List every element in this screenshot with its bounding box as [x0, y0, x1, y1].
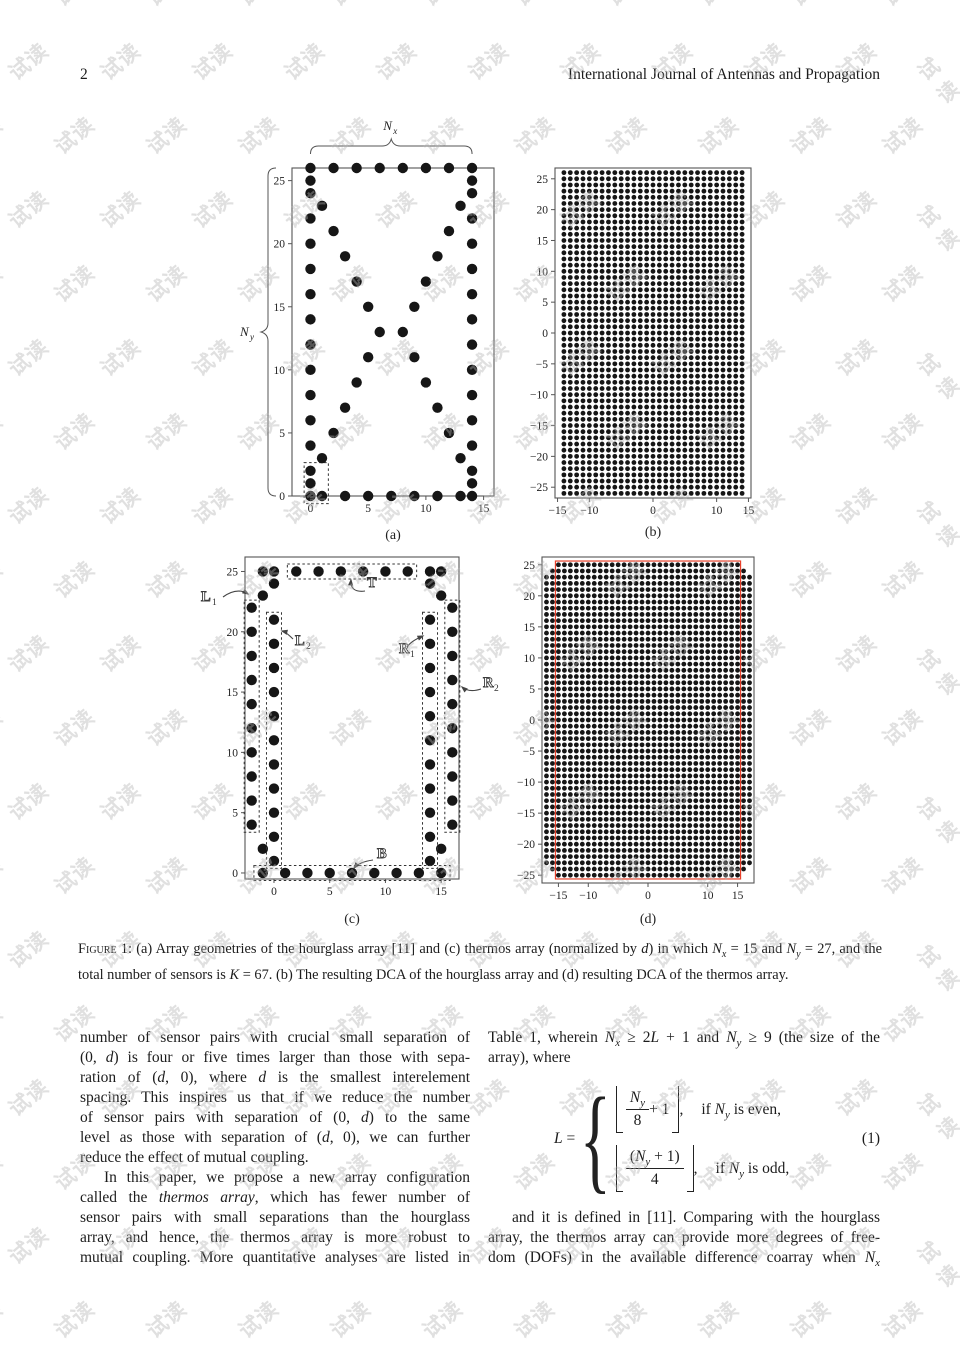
region-label-T: T [367, 575, 377, 591]
equation-1: L = { Ny8 + 1,if Ny is even,(Ny + 1)4,if… [488, 1078, 880, 1200]
trial-watermark: 试读 [0, 0, 8, 13]
trial-watermark: 试读 [876, 701, 929, 752]
text-line: sensor pairs with small separations than… [80, 1208, 470, 1228]
math-variable: N [787, 941, 797, 957]
trial-watermark: 试读 [955, 416, 960, 476]
trial-watermark: 试读 [955, 120, 960, 180]
axis-dimension-label: Ny [239, 324, 254, 342]
svg-text:5: 5 [542, 297, 548, 309]
trial-watermark: 试读 [48, 0, 101, 13]
trial-watermark: 试读 [416, 0, 469, 13]
svg-text:10: 10 [537, 266, 549, 278]
fraction: (Ny + 1)4 [626, 1147, 684, 1190]
trial-watermark: 试读 [48, 701, 101, 752]
trial-watermark: 试读 [876, 849, 929, 900]
math-variable: K [229, 967, 239, 983]
svg-text:20: 20 [227, 627, 239, 639]
math-variable: d [641, 941, 648, 957]
trial-watermark: 试读 [876, 257, 929, 308]
text-line: In this paper, we propose a new array co… [80, 1168, 470, 1188]
trial-watermark: 试读 [830, 331, 883, 382]
comma: , [679, 1100, 683, 1120]
trial-watermark: 试读 [48, 1293, 101, 1344]
svg-text:10: 10 [380, 886, 392, 898]
svg-text:25: 25 [227, 566, 239, 578]
equation-case-row: (Ny + 1)4,if Ny is odd, [616, 1145, 789, 1192]
trial-watermark: 试读 [140, 0, 193, 13]
nx-brace [310, 139, 472, 154]
region-label-subscript: 2 [306, 642, 311, 652]
trial-watermark: 试读 [955, 0, 960, 32]
math-variable: d [258, 1069, 266, 1086]
trial-watermark: 试读 [140, 1293, 193, 1344]
trial-watermark: 试读 [911, 1226, 960, 1294]
region-label-L2: L [295, 633, 305, 649]
trial-watermark: 试读 [876, 997, 929, 1048]
trial-watermark: 试读 [2, 331, 55, 382]
svg-text:5: 5 [365, 503, 371, 515]
svg-text:−15: −15 [549, 890, 567, 902]
trial-watermark: 试读 [508, 1293, 561, 1344]
trial-watermark: 试读 [955, 1008, 960, 1068]
svg-text:−5: −5 [536, 359, 548, 371]
right-text-column: Table 1, wherein Nx ≥ 2L + 1 and Ny ≥ 9 … [488, 1028, 880, 1268]
svg-text:−25: −25 [517, 870, 535, 882]
math-variable: d [361, 1109, 369, 1126]
svg-text:−15: −15 [517, 808, 535, 820]
math-subscript: y [640, 1097, 645, 1109]
trial-watermark: 试读 [830, 775, 883, 826]
trial-watermark: 试读 [911, 338, 960, 406]
trial-watermark: 试读 [911, 1078, 960, 1146]
svg-text:5: 5 [327, 886, 333, 898]
page-number: 2 [80, 66, 88, 84]
trial-watermark: 试读 [140, 405, 193, 456]
trial-watermark: 试读 [0, 257, 8, 308]
journal-title: International Journal of Antennas and Pr… [568, 66, 880, 84]
caption-line: Figure 1: (a) Array geometries of the ho… [78, 936, 882, 962]
trial-watermark: 试读 [955, 1156, 960, 1216]
math-subscript: y [725, 1109, 730, 1121]
trial-watermark: 试读 [2, 923, 55, 974]
text-line: number of sensor pairs with crucial smal… [80, 1028, 470, 1048]
region-label-L1: L [201, 589, 211, 605]
trial-watermark: 试读 [94, 479, 147, 530]
caption-line: total number of sensors is K = 67. (b) T… [78, 962, 882, 988]
x-axis-ticks: −15−1001015 [549, 883, 743, 902]
svg-text:15: 15 [274, 302, 286, 314]
panel-label: (c) [344, 912, 360, 927]
small-caps-text: Figure [78, 941, 117, 957]
text-line: array, the thermos array can provide mor… [488, 1228, 880, 1248]
svg-text:−5: −5 [523, 746, 535, 758]
trial-watermark: 试读 [600, 0, 653, 13]
equation-case-row: Ny8 + 1,if Ny is even, [616, 1086, 789, 1133]
svg-text:x: x [392, 126, 397, 136]
trial-watermark: 试读 [416, 1293, 469, 1344]
figure-1d-thermos-dca: −15−1001015−25−20−15−10−50510152025(d) [496, 545, 784, 947]
svg-text:−20: −20 [517, 839, 535, 851]
svg-text:N: N [382, 118, 393, 133]
fraction-denominator: 4 [626, 1169, 684, 1190]
arrow-head [461, 686, 468, 693]
region-label-subscript: 1 [212, 598, 217, 608]
svg-text:0: 0 [529, 715, 535, 727]
svg-text:10: 10 [702, 890, 714, 902]
svg-text:−25: −25 [530, 482, 548, 494]
trial-watermark: 试读 [2, 479, 55, 530]
math-subscript: y [739, 1168, 744, 1180]
svg-text:5: 5 [529, 684, 535, 696]
svg-text:0: 0 [271, 886, 277, 898]
equation-number: (1) [862, 1129, 880, 1149]
text-line: and it is defined in [11]. Comparing wit… [488, 1208, 880, 1228]
trial-watermark: 试读 [94, 331, 147, 382]
math-subscript: x [875, 1257, 880, 1269]
arrow-head [242, 589, 249, 595]
y-axis-ticks: 0510152025 [274, 176, 293, 503]
trial-watermark: 试读 [955, 268, 960, 328]
figure-1c-thermos-array: 0510150510152025L1L2R1R2TB(c) [195, 545, 507, 947]
axes-frame [292, 168, 494, 496]
paper-page: 2 International Journal of Antennas and … [0, 0, 960, 1357]
trial-watermark: 试读 [911, 190, 960, 258]
figure-caption: Figure 1: (a) Array geometries of the ho… [78, 936, 882, 988]
trial-watermark: 试读 [876, 1293, 929, 1344]
trial-watermark: 试读 [911, 782, 960, 850]
fraction: Ny8 [626, 1088, 649, 1131]
equation-cases: Ny8 + 1,if Ny is even,(Ny + 1)4,if Ny is… [616, 1086, 789, 1192]
text-line: array, and hence, the thermos array is m… [80, 1228, 470, 1248]
trial-watermark: 试读 [2, 775, 55, 826]
trial-watermark: 试读 [94, 183, 147, 234]
trial-watermark: 试读 [140, 257, 193, 308]
sensor-dots [305, 163, 477, 501]
svg-text:5: 5 [232, 808, 238, 820]
trial-watermark: 试读 [784, 701, 837, 752]
panel-label: (a) [385, 528, 401, 543]
trial-watermark: 试读 [876, 109, 929, 160]
trial-watermark: 试读 [955, 564, 960, 624]
math-variable: N [726, 1029, 736, 1046]
trial-watermark: 试读 [0, 1293, 8, 1344]
svg-text:15: 15 [524, 622, 536, 634]
axis-dimension-label: Nx [382, 118, 397, 136]
case-condition: if Ny is even, [701, 1100, 781, 1120]
math-subscript: y [737, 1037, 742, 1049]
dashed-highlight-box [287, 564, 416, 579]
dca-dots [544, 562, 752, 877]
panel-label: (d) [640, 912, 657, 927]
svg-text:20: 20 [274, 239, 286, 251]
svg-text:−15: −15 [530, 421, 548, 433]
right-column-top-paragraph: Table 1, wherein Nx ≥ 2L + 1 and Ny ≥ 9 … [488, 1028, 880, 1068]
y-axis-ticks: −25−20−15−10−50510152025 [517, 560, 542, 882]
svg-text:20: 20 [524, 591, 536, 603]
math-variable: N [605, 1029, 615, 1046]
trial-watermark: 试读 [2, 1071, 55, 1122]
trial-watermark: 试读 [0, 701, 8, 752]
svg-text:y: y [249, 332, 254, 342]
svg-text:10: 10 [274, 365, 286, 377]
case-condition: if Ny is odd, [716, 1159, 790, 1179]
floor-bracket-right [672, 1086, 679, 1133]
text-line: mutual coupling. More quantitative analy… [80, 1248, 470, 1268]
trial-watermark: 试读 [784, 849, 837, 900]
left-text-column: number of sensor pairs with crucial smal… [80, 1028, 470, 1268]
trial-watermark: 试读 [48, 257, 101, 308]
math-subscript: x [615, 1037, 620, 1049]
svg-text:10: 10 [711, 505, 723, 517]
figure-1a-hourglass-array: NxNy0510150510152025(a) [228, 106, 510, 551]
region-label-R2: R [483, 675, 494, 691]
right-column-bottom-paragraph: and it is defined in [11]. Comparing wit… [488, 1208, 880, 1268]
trial-watermark: 试读 [2, 627, 55, 678]
svg-text:10: 10 [227, 747, 239, 759]
trial-watermark: 试读 [0, 997, 8, 1048]
svg-text:0: 0 [308, 503, 314, 515]
svg-text:25: 25 [274, 176, 286, 188]
trial-watermark: 试读 [232, 1293, 285, 1344]
trial-watermark: 试读 [830, 479, 883, 530]
math-variable: N [635, 1148, 645, 1165]
trial-watermark: 试读 [508, 0, 561, 13]
trial-watermark: 试读 [0, 405, 8, 456]
math-variable: thermos array [159, 1189, 255, 1206]
math-variable: L [650, 1029, 659, 1046]
sensor-dots [246, 566, 457, 878]
svg-text:10: 10 [420, 503, 432, 515]
trial-watermark: 试读 [2, 1219, 55, 1270]
svg-text:−20: −20 [530, 451, 548, 463]
svg-text:−15: −15 [549, 505, 567, 517]
trial-watermark: 试读 [784, 405, 837, 456]
page-header: 2 International Journal of Antennas and … [80, 66, 880, 88]
trial-watermark: 试读 [692, 0, 745, 13]
figure-1b-hourglass-dca: −15−1001015−25−20−15−10−50510152025(b) [505, 138, 773, 553]
trial-watermark: 试读 [784, 257, 837, 308]
trial-watermark: 试读 [48, 405, 101, 456]
math-variable: N [712, 941, 722, 957]
math-subscript: y [796, 949, 800, 960]
floor-bracket-right [687, 1145, 694, 1192]
region-label-subscript: 1 [410, 650, 415, 660]
y-axis-ticks: 0510152025 [227, 566, 246, 879]
x-axis-ticks: −15−1001015 [549, 498, 755, 517]
svg-text:15: 15 [743, 505, 755, 517]
ny-brace [261, 168, 276, 496]
text-line: called the thermos array, which has fewe… [80, 1188, 470, 1208]
math-variable: d [322, 1129, 330, 1146]
svg-text:15: 15 [435, 886, 447, 898]
svg-text:0: 0 [645, 890, 651, 902]
trial-watermark: 试读 [48, 109, 101, 160]
trial-watermark: 试读 [876, 405, 929, 456]
svg-text:15: 15 [478, 503, 490, 515]
trial-watermark: 试读 [324, 0, 377, 13]
text-line: (0, d) is four or five times larger than… [80, 1048, 470, 1068]
svg-text:−10: −10 [530, 390, 548, 402]
trial-watermark: 试读 [140, 109, 193, 160]
text-line: of sensor pairs with separation of (0, d… [80, 1108, 470, 1128]
region-label-B: B [377, 846, 387, 862]
x-axis-ticks: 051015 [271, 879, 447, 898]
svg-text:0: 0 [232, 868, 238, 880]
trial-watermark: 试读 [784, 1293, 837, 1344]
trial-watermark: 试读 [692, 1293, 745, 1344]
svg-text:0: 0 [650, 505, 656, 517]
svg-text:25: 25 [537, 174, 549, 186]
trial-watermark: 试读 [784, 0, 837, 13]
trial-watermark: 试读 [911, 486, 960, 554]
trial-watermark: 试读 [140, 553, 193, 604]
fraction-numerator: Ny [626, 1088, 649, 1110]
trial-watermark: 试读 [876, 553, 929, 604]
svg-text:20: 20 [537, 205, 549, 217]
math-variable: L [554, 1130, 563, 1147]
trial-watermark: 试读 [830, 183, 883, 234]
svg-text:15: 15 [227, 687, 239, 699]
trial-watermark: 试读 [48, 849, 101, 900]
svg-text:−10: −10 [580, 505, 598, 517]
math-subscript: x [722, 949, 726, 960]
text-line: Table 1, wherein Nx ≥ 2L + 1 and Ny ≥ 9 … [488, 1028, 880, 1048]
math-variable: N [729, 1160, 739, 1177]
trial-watermark: 试读 [0, 1145, 8, 1196]
equation-lhs: L = [554, 1129, 575, 1149]
math-variable: N [865, 1249, 875, 1266]
trial-watermark: 试读 [324, 1293, 377, 1344]
math-subscript: y [645, 1156, 650, 1168]
trial-watermark: 试读 [140, 849, 193, 900]
arrow-head [417, 635, 424, 640]
math-variable: d [106, 1049, 114, 1066]
trial-watermark: 试读 [830, 627, 883, 678]
trial-watermark: 试读 [955, 860, 960, 920]
trial-watermark: 试读 [94, 627, 147, 678]
region-label-R1: R [399, 641, 410, 657]
trial-watermark: 试读 [140, 701, 193, 752]
dca-dots [562, 170, 745, 496]
svg-text:0: 0 [542, 328, 548, 340]
math-variable: N [630, 1089, 640, 1106]
trial-watermark: 试读 [876, 0, 929, 13]
svg-text:15: 15 [732, 890, 744, 902]
text-line: ration of (d, 0), where d is the smalles… [80, 1068, 470, 1088]
svg-text:15: 15 [537, 235, 549, 247]
text-line: dom (DOFs) in the available difference c… [488, 1248, 880, 1268]
trial-watermark: 试读 [0, 109, 8, 160]
trial-watermark: 试读 [784, 553, 837, 604]
trial-watermark: 试读 [911, 634, 960, 702]
trial-watermark: 试读 [2, 183, 55, 234]
floor-bracket-left [616, 1145, 623, 1192]
svg-text:10: 10 [524, 653, 536, 665]
math-variable: N [715, 1101, 725, 1118]
trial-watermark: 试读 [0, 553, 8, 604]
svg-text:N: N [239, 324, 250, 339]
trial-watermark: 试读 [911, 42, 960, 110]
svg-text:−10: −10 [579, 890, 597, 902]
text-line: level as those with separation of (d, 0)… [80, 1128, 470, 1148]
text-line: reduce the effect of mutual coupling. [80, 1148, 470, 1168]
y-axis-ticks: −25−20−15−10−50510152025 [530, 174, 555, 494]
text-line: array), where [488, 1048, 880, 1068]
trial-watermark: 试读 [94, 775, 147, 826]
svg-text:25: 25 [524, 560, 536, 572]
text-line: spacing. This inspires us that if we red… [80, 1088, 470, 1108]
trial-watermark: 试读 [955, 1304, 960, 1357]
svg-text:−10: −10 [517, 777, 535, 789]
floor-tail: + 1 [649, 1100, 669, 1120]
equation-body: L = { Ny8 + 1,if Ny is even,(Ny + 1)4,if… [554, 1078, 789, 1200]
cases-brace: { [580, 1089, 611, 1189]
comma: , [694, 1159, 698, 1179]
fraction-denominator: 8 [626, 1110, 649, 1131]
floor-bracket-left [616, 1086, 623, 1133]
trial-watermark: 试读 [600, 1293, 653, 1344]
trial-watermark: 试读 [784, 109, 837, 160]
trial-watermark: 试读 [911, 930, 960, 998]
fraction-numerator: (Ny + 1) [626, 1147, 684, 1169]
trial-watermark: 试读 [232, 0, 285, 13]
trial-watermark: 试读 [0, 849, 8, 900]
trial-watermark: 试读 [48, 553, 101, 604]
svg-text:5: 5 [279, 428, 285, 440]
trial-watermark: 试读 [2, 35, 55, 86]
svg-text:0: 0 [279, 491, 285, 503]
arrow-head [348, 579, 353, 586]
trial-watermark: 试读 [876, 1145, 929, 1196]
trial-watermark: 试读 [955, 712, 960, 772]
panel-label: (b) [645, 525, 662, 540]
math-variable: d [157, 1069, 165, 1086]
